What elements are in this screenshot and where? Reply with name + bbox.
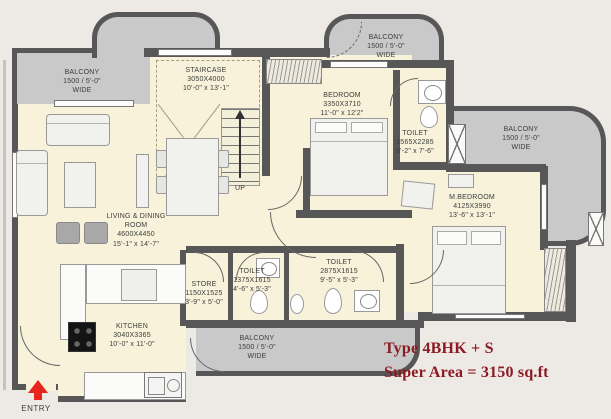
wardrobe xyxy=(266,59,322,84)
store-label: STORE1150X15253'-9" x 5'-0" xyxy=(178,280,230,308)
plan-edge-line xyxy=(3,60,6,390)
bed xyxy=(310,118,388,196)
wall xyxy=(186,320,424,328)
wardrobe xyxy=(544,248,566,312)
balcony-top-right-label: BALCONY1500 / 5'-0"WIDE xyxy=(344,33,428,61)
balcony-top-left-label: BALCONY1500 / 5'-0"WIDE xyxy=(36,68,128,96)
sofa xyxy=(46,114,110,146)
kitchen-counter xyxy=(86,264,186,304)
sink xyxy=(144,372,182,398)
wall xyxy=(566,240,576,322)
living-dining-label: LIVING & DININGROOM4600X445015'-1" x 14'… xyxy=(92,212,180,249)
wall xyxy=(303,148,310,212)
dining-chair xyxy=(156,150,167,168)
wall xyxy=(446,164,546,172)
window xyxy=(330,61,388,68)
window xyxy=(541,184,547,230)
window xyxy=(158,49,232,56)
balcony-right-label: BALCONY1500 / 5'-0"WIDE xyxy=(478,125,564,153)
up-label: UP xyxy=(228,184,252,193)
floor-plan: BALCONY1500 / 5'-0"WIDE BALCONY1500 / 5'… xyxy=(0,0,611,419)
dresser xyxy=(401,180,436,209)
master-bedroom-label: M.BEDROOM4125X399013'-6" x 13'-1" xyxy=(440,193,504,221)
armchair xyxy=(56,222,80,244)
wc xyxy=(420,106,438,128)
sofa xyxy=(16,150,48,216)
shower xyxy=(290,294,304,314)
coffee-table xyxy=(64,162,96,208)
up-arrow-head xyxy=(235,110,245,119)
bedroom-label: BEDROOM3350X371011'-0" x 12'2" xyxy=(306,91,378,119)
tv-unit xyxy=(136,154,149,208)
dining-chair xyxy=(218,150,229,168)
dining-chair xyxy=(156,176,167,194)
wall xyxy=(393,162,454,170)
toilet-bedroom-label: TOILET1565X22855'-2" x 7'-6" xyxy=(386,129,444,157)
stove xyxy=(68,322,96,352)
window xyxy=(54,100,134,107)
entry-arrow-stem xyxy=(34,392,42,400)
kitchen-label: KITCHEN3040X336510'-0" x 11'-0" xyxy=(102,322,162,350)
up-arrow xyxy=(239,118,241,178)
shaft-column xyxy=(448,124,466,164)
balcony-bottom-label: BALCONY1500 / 5'-0"WIDE xyxy=(214,334,300,362)
bed xyxy=(432,226,506,314)
super-area-text: Super Area = 3150 sq.ft xyxy=(384,364,549,382)
wall xyxy=(396,244,404,328)
washbasin xyxy=(418,80,446,104)
dresser xyxy=(448,174,474,188)
toilet-small-label: TOILET1375X16154'-6" x 5'-3" xyxy=(226,267,278,295)
dining-table xyxy=(166,138,219,216)
shaft-column xyxy=(588,212,604,246)
entry-label: ENTRY xyxy=(12,404,60,415)
plan-type-title: Type 4BHK + S xyxy=(384,340,494,358)
washbasin xyxy=(354,290,380,312)
staircase-label: STAIRCASE3050X400010'-0" x 13'-1" xyxy=(164,66,248,94)
toilet-common-label: TOILET2875X16159'-5" x 5'-3" xyxy=(304,258,374,286)
window xyxy=(455,314,525,319)
wall xyxy=(284,250,289,322)
wc xyxy=(324,288,342,314)
